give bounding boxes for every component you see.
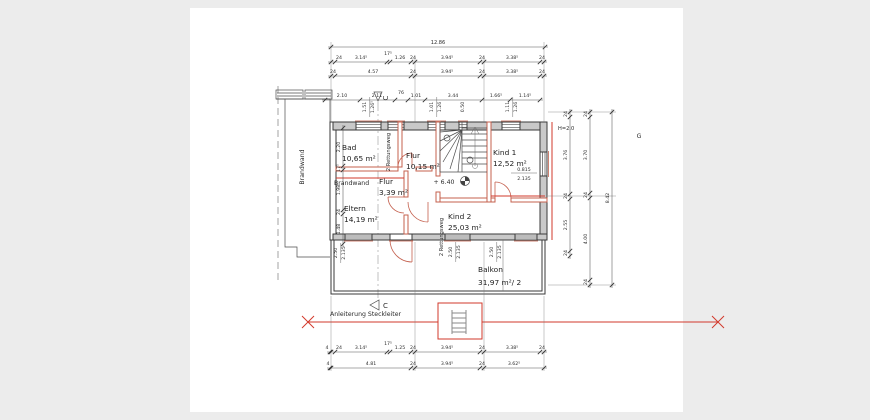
dim: 8.42: [605, 193, 611, 203]
rettungsweg-top-label: 2 Rettungsweg: [386, 133, 392, 171]
dim: 24: [539, 345, 545, 351]
screenshot-stage: 12.86 24 3.14⁵ 17⁵ 1.26 24 3.94⁵ 24 3.38…: [0, 0, 870, 420]
dim: 17⁵: [336, 164, 342, 172]
dim: 76: [398, 90, 404, 96]
dim: 2.135: [341, 246, 347, 259]
dim: 24: [336, 345, 342, 351]
height-note-label: H=2.0: [558, 126, 574, 132]
dim: 3.44: [448, 93, 458, 99]
dim: 0.50: [460, 102, 466, 112]
dim: 24: [583, 279, 589, 285]
dim: 24: [539, 69, 545, 75]
dim: 24: [563, 250, 569, 256]
dim: 1.26: [437, 102, 443, 112]
room-area-balkon: 31,97 m²/ 2: [478, 278, 521, 287]
dim: 2.135: [456, 245, 462, 258]
dim: 1.26⁵: [370, 101, 376, 113]
dim: 1.14⁵: [519, 93, 531, 99]
room-area-kind1: 12,52 m²: [493, 159, 527, 168]
dim: 3.94⁵: [441, 55, 453, 61]
room-area-flur2: 3,39 m²: [379, 188, 408, 197]
dim: 24: [410, 361, 416, 367]
brandwand-inner-label: Brandwand: [334, 180, 369, 187]
dim: 1.25: [395, 345, 405, 351]
ladder-icon: [438, 303, 482, 339]
dim: 24: [583, 111, 589, 117]
level-mark-label: + 6.40: [434, 179, 455, 186]
dim: 24: [336, 209, 342, 215]
room-name-balkon: Balkon: [478, 265, 503, 274]
dim: 2.55: [563, 220, 569, 230]
dim: 2.50: [448, 247, 454, 257]
dim: 24: [479, 361, 485, 367]
ladder-note-label: Anleiterung Steckleiter: [330, 311, 402, 318]
dim: 24: [539, 55, 545, 61]
dim: 24: [583, 192, 589, 198]
dim: 3.38⁵: [506, 69, 518, 75]
section-label-bottom: C: [383, 302, 388, 310]
dim: 3.14⁵: [355, 345, 367, 351]
dim: 24: [330, 69, 336, 75]
level-mark-icon: [461, 177, 470, 186]
dim: 17⁵: [384, 341, 392, 347]
dim: 1.51: [362, 102, 368, 112]
dim: 4: [326, 345, 329, 351]
dim: 1.48: [336, 224, 342, 234]
dim: 3.94⁵: [441, 69, 453, 75]
dim: 4.81: [366, 361, 376, 367]
dim-overall-width: 12.86: [431, 40, 446, 46]
dim: 24: [410, 55, 416, 61]
section-label-top: C: [382, 95, 390, 100]
dim: 3.62⁵: [508, 361, 520, 367]
room-area-kind2: 25,03 m²: [448, 223, 482, 232]
dim: 2.50: [333, 248, 339, 258]
room-area-eltern: 14,19 m²: [344, 215, 378, 224]
room-area-bad: 10,65 m²: [342, 154, 376, 163]
floor-plan-canvas: 12.86 24 3.14⁵ 17⁵ 1.26 24 3.94⁵ 24 3.38…: [0, 0, 870, 420]
dim: 1.66⁵: [490, 93, 502, 99]
dim: 1.26: [395, 55, 405, 61]
dim: 4.57: [368, 69, 378, 75]
dim: 2.135: [497, 245, 503, 258]
dim: 24: [563, 111, 569, 117]
dim: 17⁵: [384, 51, 392, 57]
dim: 3.94⁵: [441, 345, 453, 351]
room-name-flur1: Flur: [406, 151, 421, 160]
axis-label-right: G: [637, 133, 642, 140]
dim: 24: [479, 69, 485, 75]
dim: 24: [336, 55, 342, 61]
room-name-eltern: Eltern: [344, 204, 366, 213]
dim: 24: [479, 55, 485, 61]
room-name-kind2: Kind 2: [448, 212, 471, 221]
dim: 4.00: [583, 234, 589, 244]
dim: 24: [563, 193, 569, 199]
dim: 3.38⁵: [506, 345, 518, 351]
room-name-flur2: Flur: [379, 177, 394, 186]
dim: 3.38⁵: [506, 55, 518, 61]
dim: 3.94⁵: [441, 361, 453, 367]
room-area-flur1: 10,15 m²: [406, 162, 440, 171]
dim: 2.11: [372, 93, 382, 99]
dim: 2.50: [489, 247, 495, 257]
dim: 2.135: [517, 176, 530, 182]
dim: 24: [410, 345, 416, 351]
dim: 1.01: [429, 102, 435, 112]
dim: 3.76: [563, 150, 569, 160]
room-name-kind1: Kind 1: [493, 148, 517, 157]
dim: 1.26: [513, 102, 519, 112]
dim: 4: [327, 361, 330, 367]
dim: 3.14⁵: [355, 55, 367, 61]
dim: 1.01: [411, 93, 421, 99]
dim: 24: [479, 345, 485, 351]
room-name-bad: Bad: [342, 143, 357, 152]
rettungsweg-bottom-label: 2 Rettungsweg: [439, 218, 445, 256]
dim: 1.11: [505, 102, 511, 112]
drawing-sheet: [190, 8, 683, 412]
dim: 3.70: [583, 150, 589, 160]
brandwand-vertical-label: Brandwand: [299, 149, 306, 184]
dim: 24: [410, 69, 416, 75]
dim: 2.10: [337, 93, 347, 99]
